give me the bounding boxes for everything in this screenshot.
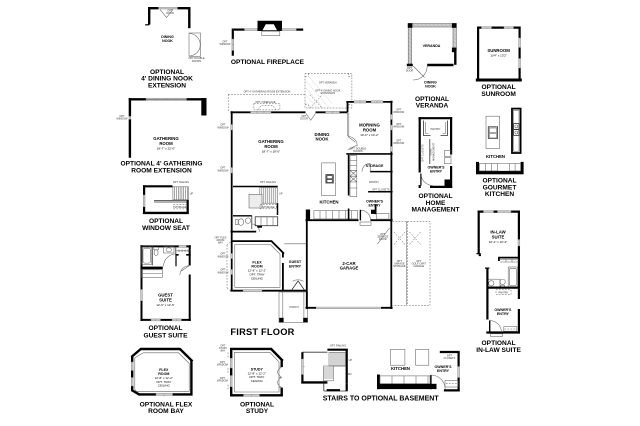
svg-text:PORCH: PORCH <box>289 306 298 309</box>
svg-text:PANTRY: PANTRY <box>499 291 509 294</box>
svg-text:KITCHEN: KITCHEN <box>391 366 410 371</box>
svg-text:ENTRY: ENTRY <box>368 204 381 208</box>
svg-text:ENTRY: ENTRY <box>430 170 443 174</box>
svg-text:SUITE: SUITE <box>159 297 172 302</box>
svg-text:NOOK: NOOK <box>162 39 173 43</box>
svg-text:OPT 4' GATHERING ROOM EXTENSIO: OPT 4' GATHERING ROOM EXTENSION <box>244 91 291 94</box>
svg-text:FIRST FLOOR: FIRST FLOOR <box>230 327 294 337</box>
svg-text:12'-6" x 12'-6": 12'-6" x 12'-6" <box>156 303 174 307</box>
svg-text:KITCHEN: KITCHEN <box>485 191 515 198</box>
svg-text:NOOK: NOOK <box>316 137 330 142</box>
svg-text:18'-7" x 22'-0": 18'-7" x 22'-0" <box>157 146 175 150</box>
svg-text:IN-LAW SUITE: IN-LAW SUITE <box>476 347 521 354</box>
svg-text:OPT. RAILING: OPT. RAILING <box>330 344 346 347</box>
svg-text:CEILING: CEILING <box>158 384 171 388</box>
svg-text:NOOK: NOOK <box>425 85 436 89</box>
svg-text:OPTIONAL FIREPLACE: OPTIONAL FIREPLACE <box>231 59 305 66</box>
svg-text:10'-2" x 10'-2": 10'-2" x 10'-2" <box>489 240 507 244</box>
svg-text:PANTRY: PANTRY <box>431 128 441 131</box>
svg-text:OPTIONAL: OPTIONAL <box>148 325 182 332</box>
svg-text:DOOR: DOOR <box>300 118 308 121</box>
svg-text:10'-6" x 13'-2": 10'-6" x 13'-2" <box>360 133 378 137</box>
svg-text:WINDOW: WINDOW <box>393 126 405 129</box>
svg-text:ROOM: ROOM <box>264 144 278 149</box>
svg-text:18'-7" x 18'-0": 18'-7" x 18'-0" <box>262 150 280 154</box>
svg-text:ROOM: ROOM <box>159 141 173 146</box>
svg-text:ENTRY: ENTRY <box>497 312 510 316</box>
svg-text:DOOR: DOOR <box>166 12 174 15</box>
svg-text:WINDOW: WINDOW <box>393 111 405 114</box>
svg-text:CLOSETS: CLOSETS <box>444 357 456 360</box>
svg-text:SUNROOM: SUNROOM <box>487 48 510 53</box>
svg-text:WINDOW: WINDOW <box>220 43 232 46</box>
svg-text:MANAGEMENT: MANAGEMENT <box>432 143 435 161</box>
svg-text:KITCHEN: KITCHEN <box>486 154 505 159</box>
svg-text:KITCHEN: KITCHEN <box>319 200 338 205</box>
svg-text:WINDOW: WINDOW <box>218 255 230 258</box>
svg-text:ROOM EXTENSION: ROOM EXTENSION <box>131 167 192 174</box>
svg-text:OPT. RAILING: OPT. RAILING <box>260 181 276 184</box>
svg-text:ENTRY: ENTRY <box>437 369 450 373</box>
svg-text:SUITE: SUITE <box>492 234 505 239</box>
svg-text:ROOM BAY: ROOM BAY <box>148 408 184 415</box>
svg-text:MANAGEMENT: MANAGEMENT <box>412 207 460 214</box>
svg-text:GARAGE: GARAGE <box>413 265 424 268</box>
svg-text:WINDOW SEAT: WINDOW SEAT <box>142 225 190 232</box>
svg-text:SUNROOM: SUNROOM <box>481 91 516 98</box>
svg-text:10'4" x 13'2": 10'4" x 13'2" <box>490 53 506 57</box>
svg-text:GARAGE: GARAGE <box>340 266 359 271</box>
svg-text:OPT CLOSETS: OPT CLOSETS <box>421 144 424 162</box>
svg-text:STUDY: STUDY <box>246 408 269 415</box>
svg-text:WINDOW: WINDOW <box>218 271 230 274</box>
svg-text:GUEST SUITE: GUEST SUITE <box>144 332 189 339</box>
svg-text:VERANDA: VERANDA <box>423 44 441 48</box>
svg-text:STORAGE: STORAGE <box>174 206 187 209</box>
svg-text:UP: UP <box>190 193 194 196</box>
svg-text:UP: UP <box>279 193 283 196</box>
svg-text:BAY: BAY <box>218 242 223 245</box>
svg-text:EXTENSION: EXTENSION <box>148 82 186 89</box>
svg-text:STORAGE: STORAGE <box>366 164 384 168</box>
svg-text:OPT CLOSETS: OPT CLOSETS <box>372 189 390 192</box>
svg-text:STAIRS TO OPTIONAL BASEMENT: STAIRS TO OPTIONAL BASEMENT <box>323 396 440 403</box>
svg-text:OPT VERANDA: OPT VERANDA <box>319 81 337 84</box>
svg-text:WINDOW: WINDOW <box>218 169 230 172</box>
svg-text:GUEST: GUEST <box>289 260 302 264</box>
svg-text:DOORS: DOORS <box>353 150 363 153</box>
svg-text:DOOR: DOOR <box>379 238 387 241</box>
svg-text:WINDOW: WINDOW <box>217 364 229 367</box>
svg-text:VERANDA: VERANDA <box>416 103 449 110</box>
svg-text:WINDOW: WINDOW <box>117 118 129 121</box>
svg-text:STORAGE: STORAGE <box>262 206 275 209</box>
svg-text:WINDOW: WINDOW <box>393 142 405 145</box>
svg-text:PANTRY: PANTRY <box>369 181 379 184</box>
svg-text:OPT. RAILING: OPT. RAILING <box>173 181 189 184</box>
svg-text:WINDOW: WINDOW <box>218 126 230 129</box>
svg-text:DN: DN <box>348 373 352 376</box>
svg-text:CEILING: CEILING <box>251 379 264 383</box>
svg-text:ENTRY: ENTRY <box>289 264 302 268</box>
svg-text:STORAGE: STORAGE <box>393 265 406 268</box>
svg-text:EXTENSION: EXTENSION <box>321 92 336 95</box>
svg-text:ROOM: ROOM <box>363 128 377 133</box>
svg-text:UP: UP <box>349 359 353 362</box>
svg-text:DOOR: DOOR <box>406 70 414 73</box>
svg-text:BAY: BAY <box>221 350 226 353</box>
svg-text:DOORS: DOORS <box>192 60 202 63</box>
svg-text:CEILING: CEILING <box>251 276 264 280</box>
svg-text:WINDOW: WINDOW <box>217 380 229 383</box>
